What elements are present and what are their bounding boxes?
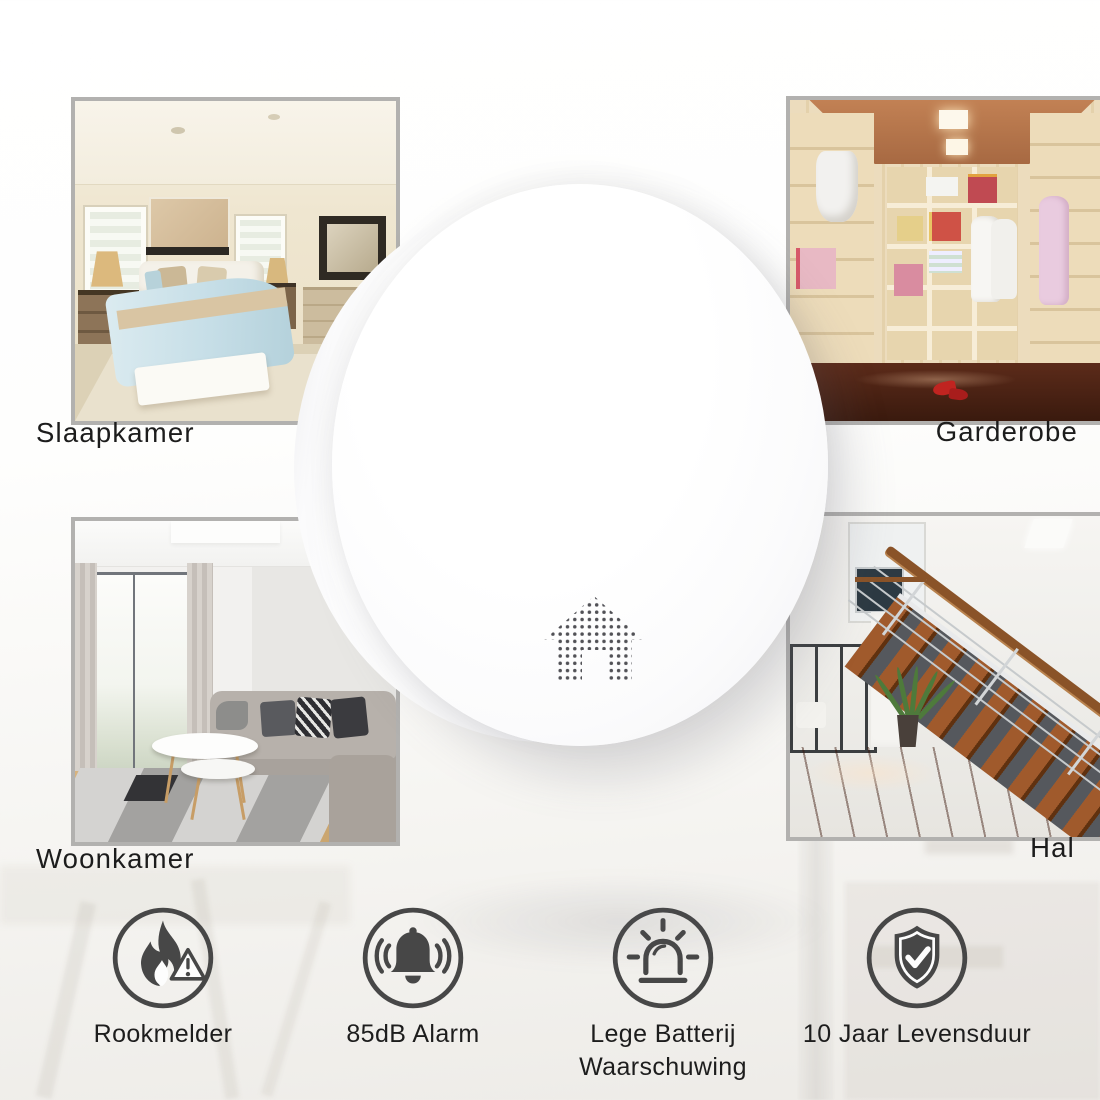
folded-clothes [926, 177, 958, 196]
shield-check-icon [865, 906, 969, 1010]
art-shelf [146, 247, 229, 255]
feature-label-line1: Lege Batterij [533, 1018, 793, 1051]
window-mullion [133, 572, 135, 771]
room-label-slaapkamer: Slaapkamer [36, 417, 195, 449]
detector-shadow [404, 874, 834, 969]
house-dots-icon [542, 594, 646, 684]
room-label-hal: Hal [1030, 832, 1075, 864]
hanging-dress [991, 219, 1017, 299]
storage-box [897, 216, 923, 242]
photo-garderobe [786, 96, 1100, 425]
hall-scene [790, 516, 1100, 837]
curtain [75, 563, 97, 784]
ceiling [75, 101, 396, 185]
feature-label-levensduur: 10 Jaar Levensduur [787, 1018, 1047, 1051]
ceiling-light [268, 114, 280, 120]
cushion [260, 700, 298, 738]
folded-clothes [929, 251, 961, 273]
gift-box [894, 264, 923, 296]
room-label-garderobe: Garderobe [936, 416, 1078, 448]
ceiling-light [171, 127, 185, 134]
feature-label-lege-batterij: Lege Batterij Waarschuwing [533, 1018, 793, 1084]
gift-box [968, 174, 997, 203]
feature-label-line2: Waarschuwing [533, 1051, 793, 1084]
flame-warning-icon [111, 906, 215, 1010]
gift-box [929, 212, 961, 241]
photo-hal [786, 512, 1100, 841]
throw-blanket [216, 701, 248, 730]
wardrobe-scene [790, 100, 1100, 421]
hanging-garment [1039, 196, 1068, 305]
landing-rail [855, 577, 926, 582]
feature-label-85db-alarm: 85dB Alarm [283, 1018, 543, 1051]
checkered-rug [71, 768, 356, 842]
feature-rookmelder: Rookmelder [33, 906, 293, 1051]
ceiling-light [939, 110, 968, 129]
coffee-table [181, 759, 255, 780]
railing-post [882, 578, 927, 636]
ceiling-panel [171, 521, 280, 543]
potted-plant [884, 667, 929, 718]
coffee-table [152, 733, 258, 759]
smoke-detector [294, 184, 828, 746]
room-label-woonkamer: Woonkamer [36, 843, 195, 875]
feature-label-rookmelder: Rookmelder [33, 1018, 293, 1051]
floor-gloss [803, 754, 939, 793]
product-infographic-page: { "rooms": [ { "name": "slaapkamer", "la… [0, 0, 1100, 1100]
wall-art [149, 197, 230, 249]
ceiling-light [946, 139, 969, 155]
armchair [329, 755, 396, 842]
railing-post [974, 648, 1019, 706]
